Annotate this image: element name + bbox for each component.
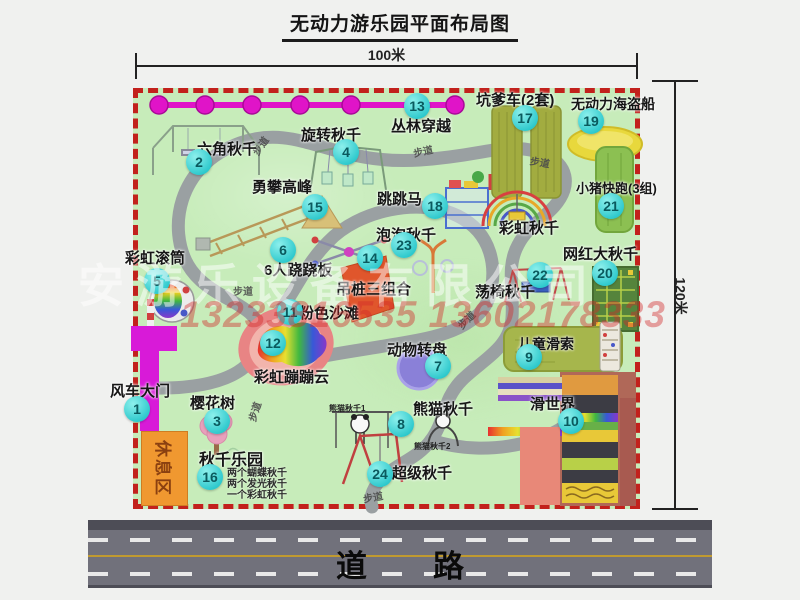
rainbow-swing-label: 彩虹秋千 [499,217,559,238]
attraction-badge-13[interactable]: 13 [404,93,430,119]
panda-swing-sub-label: 熊猫秋千1 [329,403,365,414]
page-title-text: 无动力游乐园平面布局图 [282,9,518,42]
width-dimension-line [135,65,638,67]
panda-swing-sub-label: 熊猫秋千2 [414,441,450,452]
page-title: 无动力游乐园平面布局图 [0,9,800,42]
swing-park-detail: 一个彩虹秋千 [227,486,287,501]
attraction-label-14: 吊桩三组合 [336,278,411,299]
attraction-badge-19[interactable]: 19 [578,108,604,134]
attraction-badge-4[interactable]: 4 [333,139,359,165]
attraction-badge-15[interactable]: 15 [302,194,328,220]
attraction-badge-2[interactable]: 2 [186,149,212,175]
attraction-badge-22[interactable]: 22 [527,262,553,288]
attraction-label-24: 超级秋千 [392,462,452,483]
attraction-label-12: 彩虹蹦蹦云 [254,366,329,387]
rest-area: 休息区 [141,431,188,506]
attraction-label-15: 勇攀高峰 [252,176,312,197]
attraction-label-22: 荡椅秋千 [475,281,535,302]
attraction-badge-20[interactable]: 20 [592,260,618,286]
park-layout-diagram: 无动力游乐园平面布局图 100米 120米 [0,0,800,600]
attraction-badge-16[interactable]: 16 [197,464,223,490]
attraction-label-11: 粉色沙滩 [299,302,359,323]
attraction-badge-21[interactable]: 21 [598,193,624,219]
width-dimension-label: 100米 [135,45,638,65]
attraction-badge-7[interactable]: 7 [425,353,451,379]
road-label: 道路 [88,541,712,586]
attraction-badge-1[interactable]: 1 [124,396,150,422]
attraction-badge-11[interactable]: 11 [277,299,303,325]
walkway-label: 步道 [529,152,551,170]
attraction-badge-12[interactable]: 12 [260,330,286,356]
attraction-label-17: 坑爹车(2套) [476,89,554,110]
attraction-badge-5[interactable]: 5 [144,268,170,294]
road: 道路 [88,520,712,588]
height-dimension-label: 120米 [671,277,691,314]
attraction-label-18: 跳跳马 [377,188,422,209]
attraction-badge-8[interactable]: 8 [388,411,414,437]
attraction-label-6: 6人跷跷板 [264,259,332,280]
attraction-badge-6[interactable]: 6 [270,237,296,263]
attraction-badge-24[interactable]: 24 [367,461,393,487]
attraction-badge-9[interactable]: 9 [516,344,542,370]
walkway-label: 步道 [233,283,253,298]
rest-area-label: 休息区 [152,440,177,497]
attraction-badge-23[interactable]: 23 [391,232,417,258]
attraction-badge-18[interactable]: 18 [422,193,448,219]
attraction-badge-3[interactable]: 3 [204,408,230,434]
attraction-badge-17[interactable]: 17 [512,105,538,131]
attraction-badge-10[interactable]: 10 [558,408,584,434]
attraction-badge-14[interactable]: 14 [357,245,383,271]
attraction-label-8: 熊猫秋千 [413,398,473,419]
attraction-label-5: 彩虹滚筒 [125,247,185,268]
